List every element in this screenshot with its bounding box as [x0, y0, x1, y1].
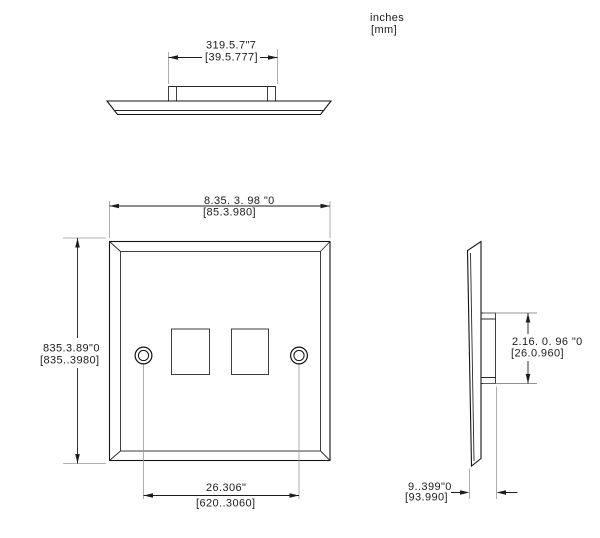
arrowhead-right: [321, 204, 331, 209]
front-view: [110, 242, 331, 461]
arrowhead-left: [497, 490, 507, 495]
arrowhead-left: [110, 204, 120, 209]
dim-mm: [620..3060]: [196, 498, 255, 510]
arrowhead-right: [460, 490, 470, 495]
dim-mm: [85.3.980]: [203, 207, 256, 219]
screw-hole-left-inner: [138, 350, 148, 360]
dim-mm: [39.5.777]: [205, 52, 258, 64]
side-view: [468, 242, 496, 467]
mounting-boss-top: [169, 87, 276, 101]
dim-mm: [835..3980]: [40, 355, 99, 367]
units-alt-label: [mm]: [371, 24, 397, 36]
dim-screw-spacing: 26.306" [620..3060]: [144, 365, 300, 510]
dim-inches: 8.35. 3. 98 "0: [204, 195, 275, 207]
dim-inches: 319.5.7"7: [206, 40, 256, 52]
dim-mm: [26.0.960]: [511, 348, 564, 360]
arrowhead-left: [169, 55, 179, 60]
top-view: [107, 87, 331, 115]
arrowhead-right: [290, 493, 300, 498]
dim-top-boss-width: 319.5.7"7 [39.5.777]: [169, 40, 278, 85]
dim-mm: [93.990]: [405, 492, 448, 504]
arrowhead-up: [75, 238, 80, 248]
arrowhead-left: [144, 493, 154, 498]
arrowhead-down: [75, 454, 80, 464]
mounting-boss-inner-lines: [177, 87, 268, 101]
arrowhead-down: [526, 374, 531, 384]
plate-profile-outline: [107, 101, 331, 115]
dim-inches: 835.3.89"0: [43, 343, 100, 355]
side-boss-inner-lines: [481, 319, 496, 378]
side-boss-outline: [481, 313, 496, 384]
dim-inches: 2.16. 0. 96 "0: [512, 336, 583, 348]
extension-line: [144, 365, 300, 500]
units-note: inches [mm]: [370, 12, 404, 36]
units-label: inches: [370, 12, 404, 24]
technical-drawing: inches [mm] 319.5.7"7 [39.5.777] 8.35.: [0, 0, 600, 538]
screw-hole-right-inner: [294, 350, 304, 360]
dim-boss-height: 2.16. 0. 96 "0 [26.0.960]: [483, 313, 583, 384]
dim-plate-depth: 9..399"0 [93.990]: [405, 387, 518, 504]
side-profile-outline: [468, 242, 482, 467]
dim-inches: 26.306": [206, 482, 246, 494]
dim-plate-width: 8.35. 3. 98 "0 [85.3.980]: [110, 195, 331, 238]
drawing-canvas: inches [mm] 319.5.7"7 [39.5.777] 8.35.: [0, 0, 600, 538]
keystone-cutout-right: [232, 329, 269, 375]
arrowhead-right: [268, 55, 278, 60]
arrowhead-up: [526, 313, 531, 323]
keystone-cutout-left: [172, 329, 210, 375]
dim-plate-height: 835.3.89"0 [835..3980]: [40, 238, 106, 464]
